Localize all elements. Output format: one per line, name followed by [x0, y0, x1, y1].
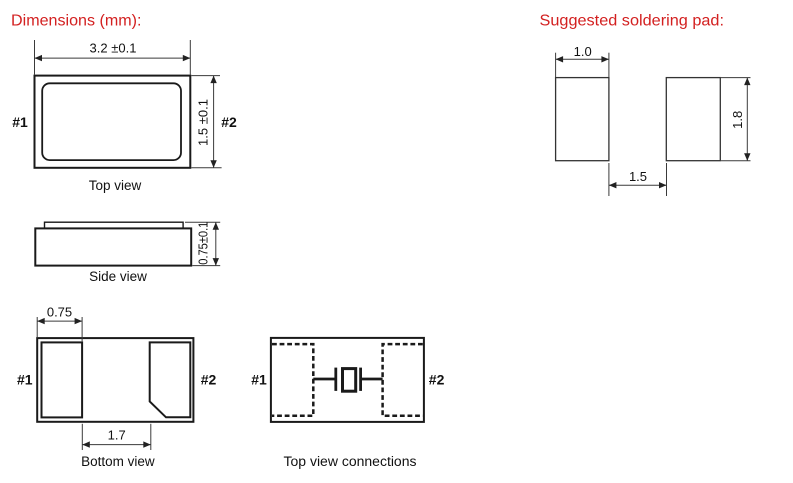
svg-text:0.75: 0.75	[47, 304, 72, 319]
svg-text:3.2 ±0.1: 3.2 ±0.1	[90, 41, 137, 56]
svg-text:Top view connections: Top view connections	[284, 454, 417, 469]
svg-text:1.0: 1.0	[574, 44, 592, 59]
svg-text:1.5 ±0.1: 1.5 ±0.1	[196, 99, 211, 146]
svg-text:#2: #2	[429, 372, 445, 388]
svg-text:1.7: 1.7	[108, 428, 126, 443]
svg-text:#1: #1	[17, 372, 33, 388]
svg-text:Suggested soldering pad:: Suggested soldering pad:	[540, 13, 725, 30]
svg-text:Dimensions (mm):: Dimensions (mm):	[11, 13, 142, 30]
svg-text:#1: #1	[251, 372, 267, 388]
svg-text:#2: #2	[201, 372, 217, 388]
svg-text:Bottom view: Bottom view	[81, 454, 155, 469]
svg-text:#2: #2	[221, 114, 237, 130]
svg-text:0.75±0.1: 0.75±0.1	[196, 222, 211, 265]
svg-text:Top view: Top view	[89, 178, 142, 193]
svg-text:Side view: Side view	[89, 269, 147, 284]
svg-text:1.8: 1.8	[730, 111, 745, 129]
svg-text:1.5: 1.5	[629, 169, 647, 184]
svg-text:#1: #1	[12, 114, 28, 130]
